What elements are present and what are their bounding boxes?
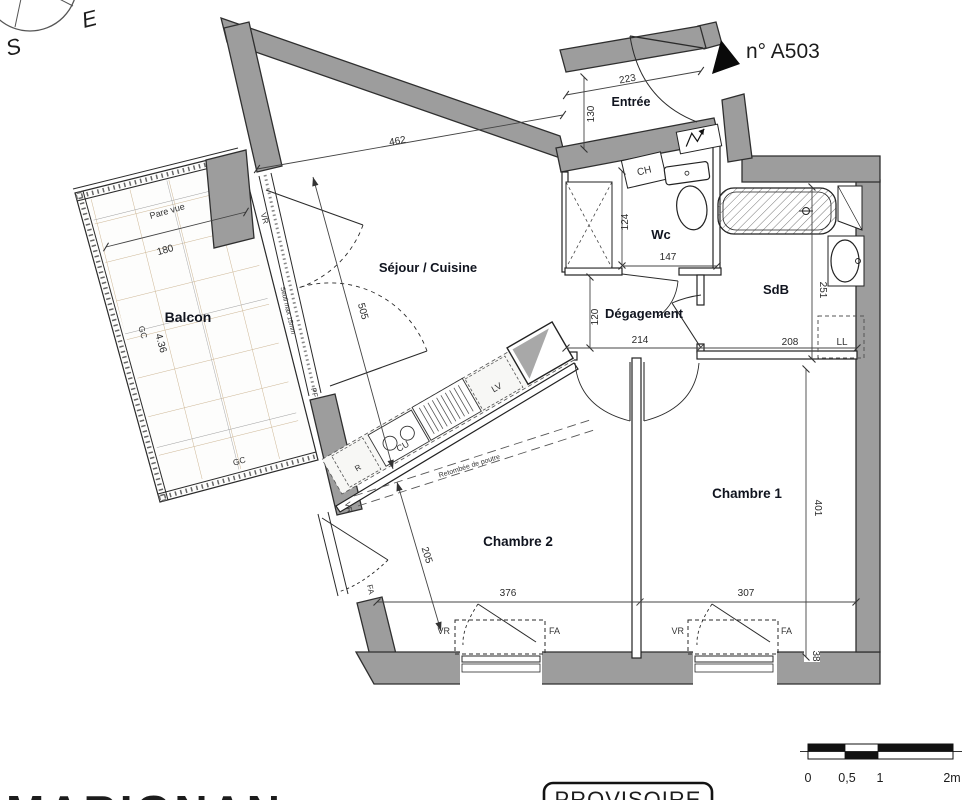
dim-deg-w: 214 — [632, 335, 649, 346]
room-degagement: Dégagement — [605, 306, 684, 321]
scale-bar: 0 0,5 1 2m — [800, 744, 962, 785]
compass-east: E — [79, 5, 100, 33]
scale-0: 0 — [805, 771, 812, 785]
dim-wc-h: 124 — [620, 213, 631, 230]
room-balcon: Balcon — [165, 309, 212, 325]
dim-sejour-w: 462 — [388, 135, 407, 149]
toilet — [664, 161, 717, 232]
washing-machine-label: LL — [836, 337, 848, 348]
unit-number: n° A503 — [746, 40, 820, 63]
entry-closet — [566, 182, 612, 268]
scale-2m: 2m — [943, 771, 960, 785]
dim-sejour-h: 505 — [355, 302, 370, 321]
scale-1: 1 — [877, 771, 884, 785]
dim-deg-h: 120 — [590, 308, 601, 325]
dim-ch1-w: 307 — [738, 588, 755, 599]
compass-rose: E S — [0, 0, 100, 61]
dim-ch1-h: 401 — [812, 500, 823, 517]
corner-shelf — [838, 186, 862, 230]
room-sejour: Séjour / Cuisine — [379, 260, 477, 275]
beam-label: Retombée de poutre — [438, 454, 501, 480]
scale-05: 0,5 — [838, 771, 855, 785]
vr-balcony-label: VR — [259, 212, 271, 225]
dim-entree-w: 223 — [618, 73, 637, 87]
dim-entree-d: 130 — [586, 105, 597, 122]
kitchen-counter: R CU LV — [320, 322, 574, 494]
vr-ch2-label: VR — [437, 626, 450, 636]
dim-wc-w: 147 — [660, 252, 677, 263]
washbasin — [828, 236, 864, 286]
developer-logo: MARIGNAN — [6, 786, 283, 800]
dim-sdb-h: 251 — [817, 282, 828, 299]
room-entree: Entrée — [612, 95, 651, 109]
fa-ch2-label: FA — [549, 626, 560, 636]
fa-ch1-label: FA — [781, 626, 792, 636]
fa-ch2-west-label: FA — [365, 584, 376, 596]
stamp-text: PROVISOIRE — [555, 787, 702, 800]
dim-sdb-w: 208 — [782, 337, 799, 348]
balcony — [40, 120, 360, 540]
compass-south: S — [3, 33, 24, 61]
room-sdb: SdB — [763, 282, 789, 297]
room-wc: Wc — [651, 227, 671, 242]
unit-marker: n° A503 — [712, 40, 820, 74]
dim-ch2-w: 376 — [500, 588, 517, 599]
pf-label: PF — [309, 387, 320, 399]
vr-ch1-label: VR — [671, 626, 684, 636]
floor-plan-page: E S — [0, 0, 976, 800]
provisoire-stamp: PROVISOIRE — [544, 783, 712, 800]
bathtub — [718, 188, 836, 234]
dim-wall38: 38 — [810, 650, 821, 662]
room-chambre1: Chambre 1 — [712, 486, 782, 501]
room-chambre2: Chambre 2 — [483, 534, 553, 549]
floor-plan-svg: E S — [0, 0, 976, 800]
